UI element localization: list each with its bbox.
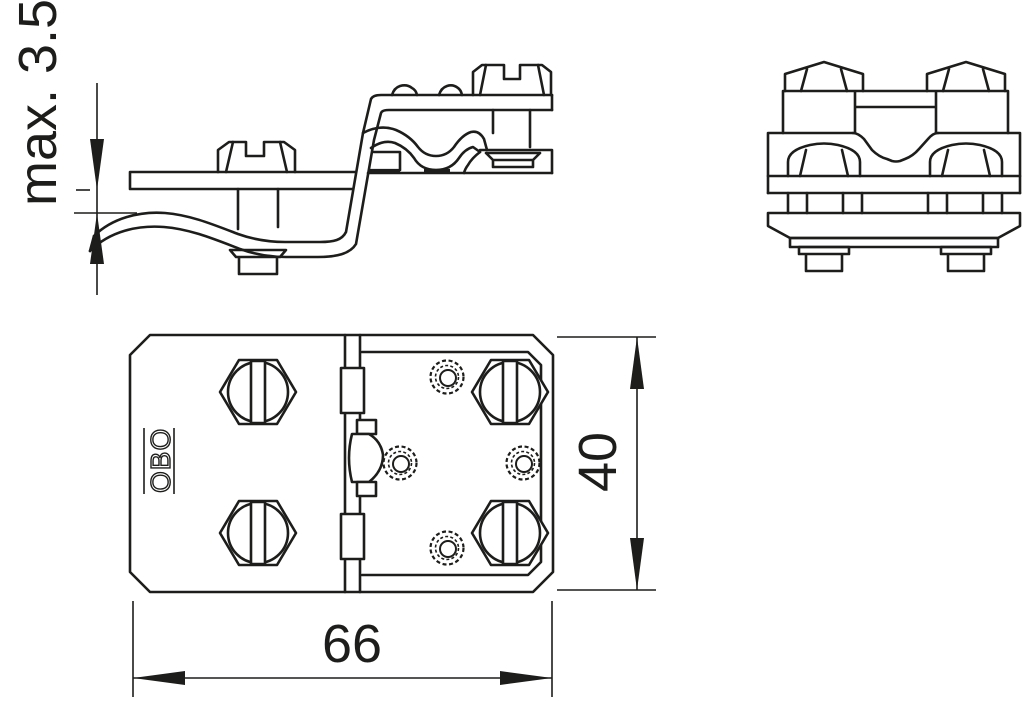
dim-40-arrow-up (630, 337, 644, 389)
dimension-width: 66 (133, 601, 552, 697)
side-view (90, 65, 552, 274)
drawing-svg: OBO max. 3.5 40 66 (0, 0, 1024, 702)
dim-40-arrow-down (630, 538, 644, 590)
side-right-bolt-shank (493, 110, 530, 147)
side-plate (130, 172, 356, 189)
top-saddle-step-lower (357, 482, 376, 496)
knurled-screw-4 (431, 532, 464, 565)
knurled-screw-2 (384, 447, 417, 480)
front-left-bolt-head (785, 62, 863, 91)
side-pocket (374, 152, 400, 170)
knurled-screw-1 (431, 361, 464, 394)
front-left-tail (799, 247, 849, 271)
top-saddle-step-upper (357, 420, 376, 434)
hex-screw-bottom-right (472, 501, 548, 565)
front-left-bolt-facets (801, 69, 847, 91)
dimension-height: 40 (557, 337, 656, 590)
front-base-strip (790, 238, 998, 247)
obo-logo-text: OBO (145, 428, 176, 493)
front-right-bolt-facets (943, 69, 989, 91)
dim-40-label: 40 (568, 432, 628, 492)
front-view (768, 62, 1020, 271)
spring-clip-upper-edge (94, 95, 552, 242)
front-base-plate (768, 213, 1020, 238)
hex-screw-bottom-left (220, 501, 296, 565)
spring-clip-lower-edge (90, 110, 552, 257)
dim-66-arrow-left (133, 671, 185, 685)
dim-66-label: 66 (322, 614, 382, 674)
side-screw-tip-bumps (392, 85, 462, 95)
hex-screw-top-right (472, 360, 548, 424)
front-saddle-channel (853, 133, 938, 162)
front-left-nut (788, 144, 860, 177)
front-left-boss (788, 193, 862, 213)
dim-max-arrow-down (90, 139, 104, 190)
front-right-boss (928, 193, 1002, 213)
side-right-block-recess (486, 153, 540, 167)
side-left-bolt-shank (238, 189, 278, 229)
hex-screw-top-left (220, 360, 296, 424)
top-joint-tab-upper (341, 368, 364, 413)
dim-66-arrow-right (500, 671, 552, 685)
front-saddle-plate (768, 133, 1020, 193)
top-saddle-bump (349, 434, 383, 482)
obo-logo: OBO (144, 428, 176, 494)
front-right-nut (930, 144, 1002, 177)
knurled-screw-3 (507, 447, 540, 480)
dimension-clamping-range: max. 3.5 (8, 0, 137, 295)
saddle-lower-edge (371, 142, 480, 170)
front-right-bolt-head (927, 62, 1005, 91)
top-joint-tab-lower (341, 514, 364, 559)
front-right-tail (941, 247, 991, 271)
dim-max-label: max. 3.5 (8, 0, 68, 206)
technical-drawing-page: OBO max. 3.5 40 66 (0, 0, 1024, 702)
top-view: OBO (130, 335, 553, 592)
front-upper-block (783, 91, 1008, 133)
